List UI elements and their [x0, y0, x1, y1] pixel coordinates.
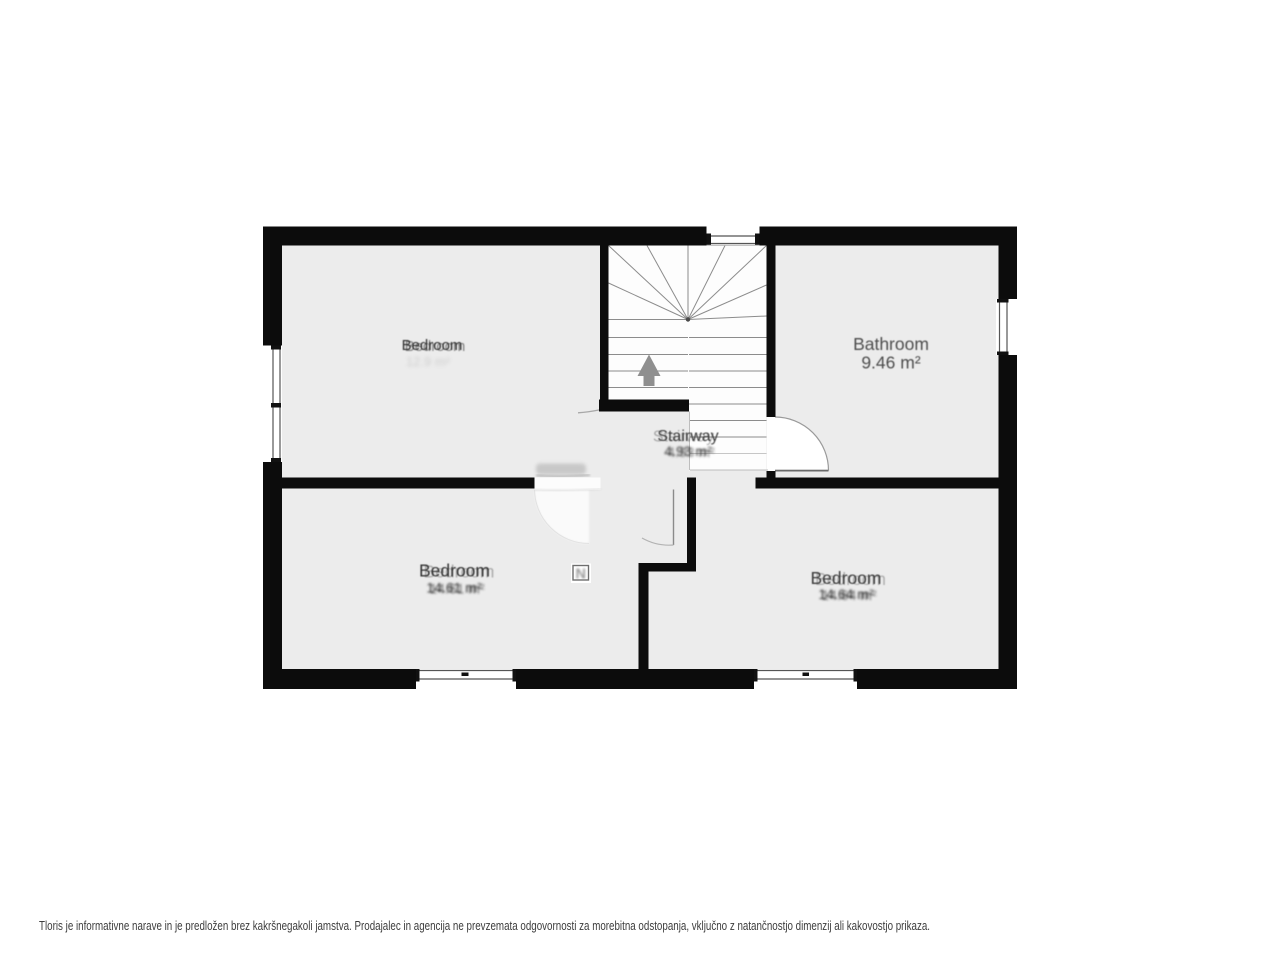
svg-text:14.61 m²: 14.61 m²	[429, 581, 485, 597]
svg-text:N: N	[576, 567, 586, 583]
svg-text:Bathroom: Bathroom	[853, 334, 929, 354]
svg-text:9.46 m²: 9.46 m²	[861, 353, 920, 373]
svg-text:12.9 m²: 12.9 m²	[406, 354, 451, 369]
svg-text:Bedroom: Bedroom	[423, 561, 494, 581]
svg-text:Tloris je informativne narave: Tloris je informativne narave in je pred…	[39, 919, 930, 933]
svg-text:Bedroom: Bedroom	[405, 338, 466, 355]
svg-text:4.93 m²: 4.93 m²	[667, 444, 715, 460]
svg-text:14.64 m²: 14.64 m²	[821, 587, 877, 603]
